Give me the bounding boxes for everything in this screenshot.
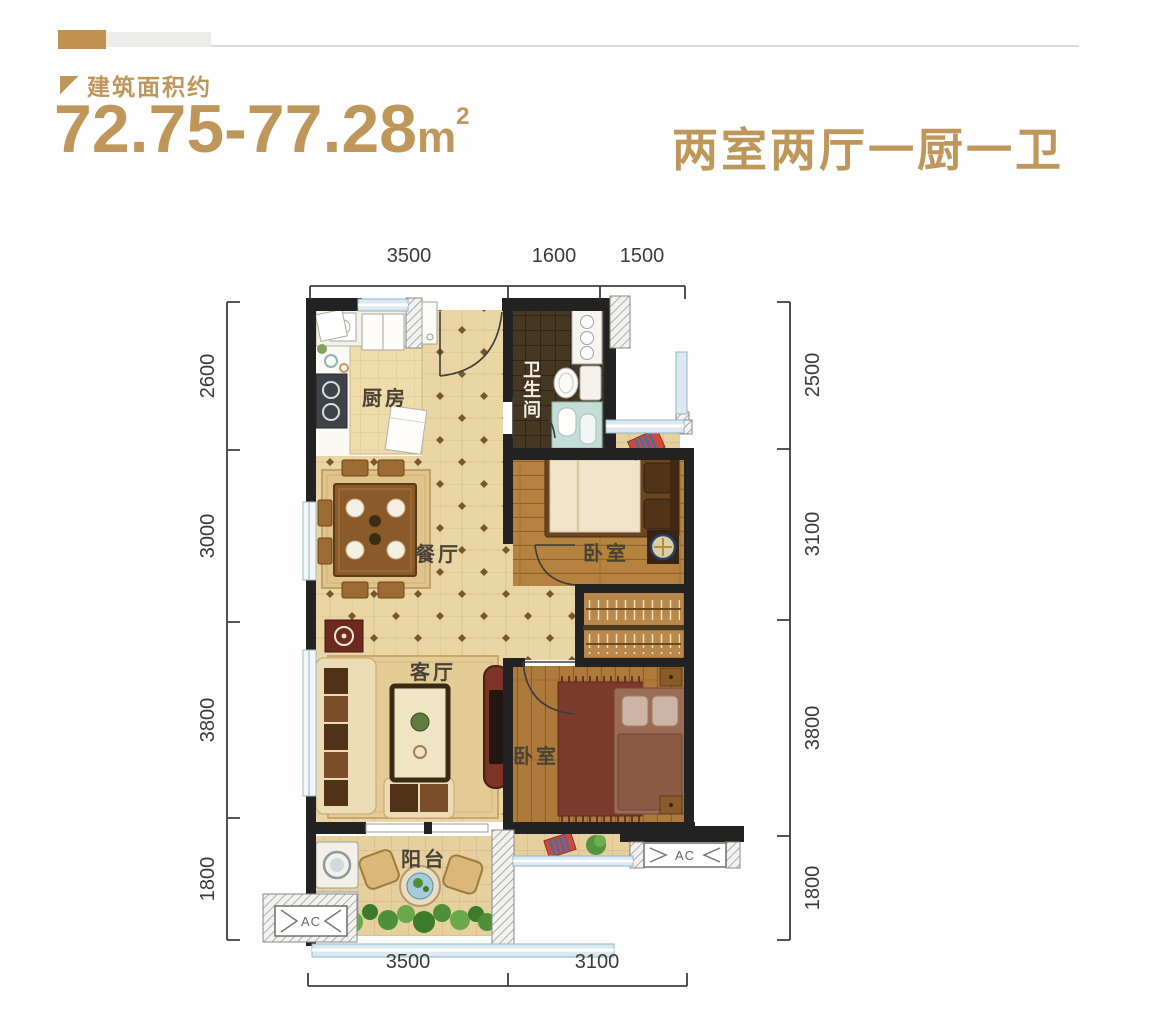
sliding-door-panel-1 bbox=[366, 824, 426, 832]
plate bbox=[346, 499, 364, 517]
nightstand-knob bbox=[669, 675, 673, 679]
sofa-cushion bbox=[324, 724, 348, 750]
vanity-basin-3 bbox=[581, 347, 594, 360]
bedroom1-label: 卧室 bbox=[583, 541, 629, 565]
wall-bedroom1-top bbox=[503, 448, 692, 460]
sofa-cushion bbox=[324, 752, 348, 778]
bathroom-label: 卫生间 bbox=[521, 360, 541, 420]
centerpiece bbox=[369, 533, 381, 545]
vanity-basin-2 bbox=[581, 332, 594, 345]
bed1-pillow bbox=[644, 499, 672, 529]
dim-right-3: 3800 bbox=[802, 706, 824, 751]
ac-left-label: AC bbox=[301, 914, 321, 929]
dim-right-1: 2500 bbox=[802, 353, 824, 398]
ac-right-label: AC bbox=[675, 848, 695, 863]
plate bbox=[387, 541, 405, 559]
towel-2 bbox=[580, 414, 596, 444]
exterior-window-v bbox=[676, 352, 687, 414]
cabinet-dot bbox=[342, 634, 347, 639]
wall-bedroom2-top-stub bbox=[503, 658, 525, 667]
dim-left-3: 3800 bbox=[197, 698, 219, 743]
dim-bottom-1: 3500 bbox=[386, 951, 431, 973]
dining-table bbox=[334, 484, 416, 576]
wall-bath-left-upper bbox=[503, 308, 513, 402]
wall-right bbox=[684, 448, 694, 840]
toilet-tank bbox=[580, 366, 601, 400]
plate bbox=[387, 499, 405, 517]
kitchen-label: 厨房 bbox=[362, 386, 408, 410]
entry-panel bbox=[422, 302, 437, 344]
tv-screen bbox=[489, 690, 503, 764]
dim-right-2: 3100 bbox=[802, 512, 824, 557]
washer-drum bbox=[330, 858, 344, 872]
bed1-pillow bbox=[644, 463, 672, 493]
wall-top-bath bbox=[502, 298, 616, 311]
sofa2-cushion bbox=[390, 784, 418, 812]
kitchen-plant bbox=[317, 344, 327, 354]
dining-chair bbox=[318, 500, 332, 526]
dining-label: 餐厅 bbox=[415, 542, 461, 566]
sofa-cushion bbox=[324, 780, 348, 806]
dining-chair bbox=[378, 582, 404, 598]
sliding-door-panel-2 bbox=[428, 824, 488, 832]
dining-chair bbox=[342, 460, 368, 476]
plate bbox=[346, 541, 364, 559]
dim-line-left bbox=[227, 302, 240, 940]
pier-top-right bbox=[610, 296, 630, 348]
dim-left-1: 2600 bbox=[197, 354, 219, 399]
bed1-mattress bbox=[550, 460, 640, 532]
sliding-door-mid bbox=[424, 822, 432, 834]
wall-wardrobe-divider bbox=[583, 625, 684, 630]
dining-chair bbox=[378, 460, 404, 476]
bed2-pillow bbox=[652, 696, 678, 726]
wall-bedroom1-bottom bbox=[575, 584, 692, 593]
dim-line-bottom bbox=[308, 973, 687, 986]
nightstand-knob bbox=[669, 803, 673, 807]
coffee-table bbox=[392, 686, 448, 780]
floorplan-page: 建筑面积约 72.75-77.28m2 两室两厅一厨一卫 bbox=[0, 0, 1154, 1036]
dim-bottom-2: 3100 bbox=[575, 951, 620, 973]
wall-bedroom2-top bbox=[575, 658, 692, 667]
sofa2-cushion bbox=[420, 784, 448, 812]
centerpiece bbox=[369, 515, 381, 527]
table-greens bbox=[413, 878, 423, 888]
table-greens-2 bbox=[423, 886, 429, 892]
dining-furniture bbox=[318, 460, 430, 598]
table-plant bbox=[411, 713, 429, 731]
bed1-headboard bbox=[670, 459, 679, 533]
pier-balcony-right bbox=[492, 830, 514, 946]
dim-top-1: 3500 bbox=[387, 245, 432, 267]
dim-right-4: 1800 bbox=[802, 866, 824, 911]
wall-living-east bbox=[503, 666, 513, 834]
bedroom2-furniture bbox=[558, 668, 686, 822]
bed2-pillow bbox=[622, 696, 648, 726]
sofa-cushion bbox=[324, 668, 348, 694]
floorplan-svg: AC AC bbox=[0, 0, 1154, 1036]
dim-top-3: 1500 bbox=[620, 245, 665, 267]
dining-chair bbox=[342, 582, 368, 598]
dim-left-4: 1800 bbox=[197, 857, 219, 902]
ac-platform-right: AC bbox=[630, 842, 740, 868]
dim-line-right bbox=[777, 302, 790, 940]
towel-1 bbox=[558, 408, 576, 436]
cutting-board bbox=[315, 309, 347, 341]
vanity-basin-1 bbox=[581, 316, 594, 329]
bedroom2-label: 卧室 bbox=[513, 744, 559, 768]
dining-chair bbox=[318, 538, 332, 564]
ledge-plant-highlight bbox=[594, 835, 606, 847]
wall-corridor-east bbox=[575, 584, 584, 666]
ac-right-hatch-r bbox=[726, 842, 740, 868]
ac-platform-left: AC bbox=[263, 894, 357, 942]
sofa-cushion bbox=[324, 696, 348, 722]
dim-top-2: 1600 bbox=[532, 245, 577, 267]
dim-left-2: 3000 bbox=[197, 514, 219, 559]
wall-bottom-right bbox=[620, 826, 744, 842]
living-label: 客厅 bbox=[409, 660, 456, 684]
kitchen-table bbox=[385, 406, 427, 455]
balcony-label: 阳台 bbox=[401, 847, 447, 871]
